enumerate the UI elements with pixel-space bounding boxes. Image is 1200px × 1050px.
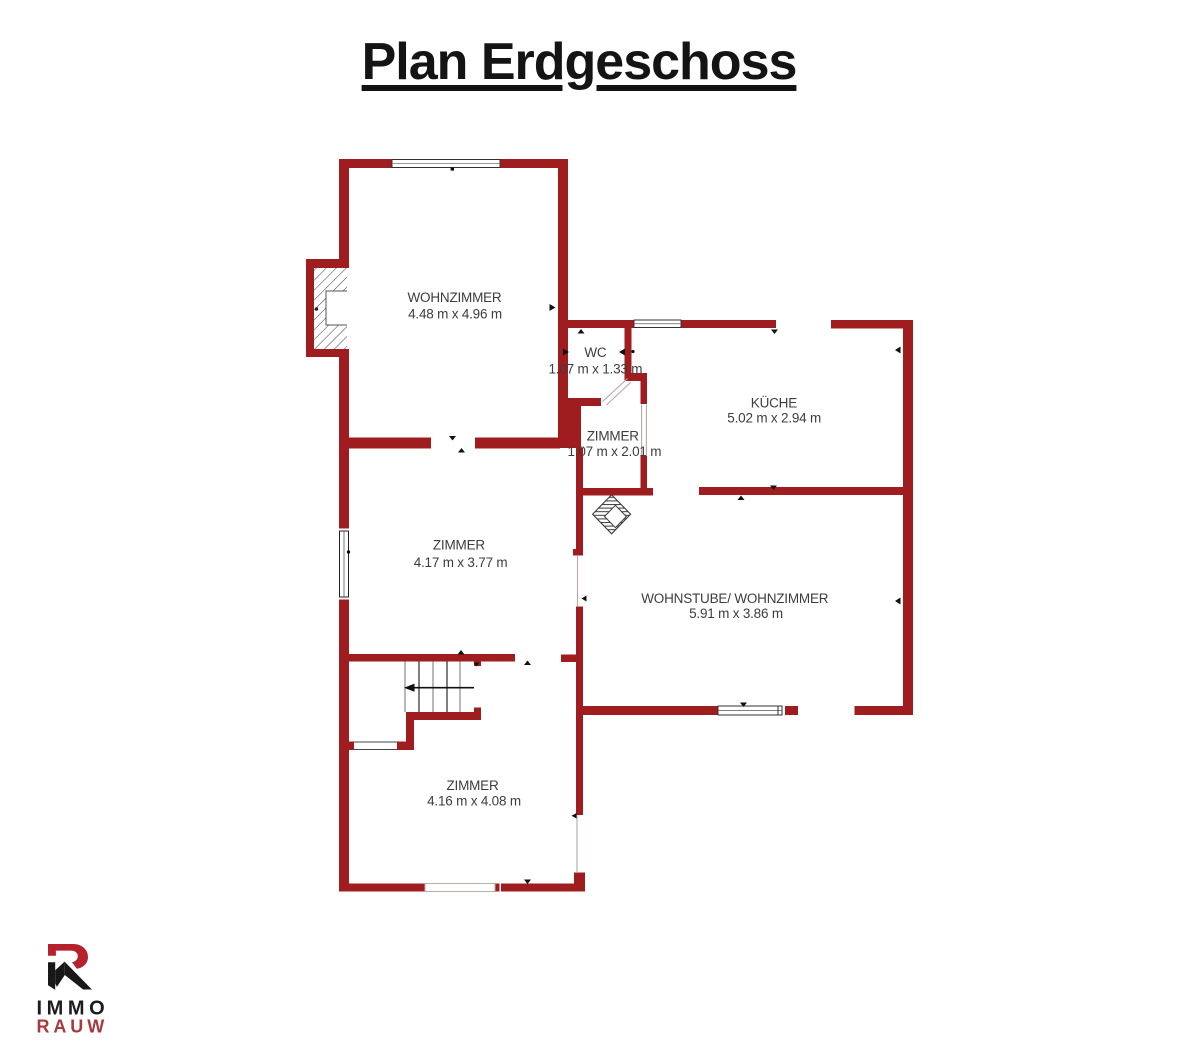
svg-text:WC: WC — [584, 345, 607, 360]
svg-text:4.48 m x 4.96 m: 4.48 m x 4.96 m — [408, 307, 502, 322]
svg-text:4.17 m x 3.77 m: 4.17 m x 3.77 m — [414, 555, 508, 570]
svg-text:ZIMMER: ZIMMER — [587, 428, 639, 443]
svg-text:5.91 m x 3.86 m: 5.91 m x 3.86 m — [689, 606, 783, 621]
svg-text:1.07 m x 1.33 m: 1.07 m x 1.33 m — [549, 361, 643, 376]
svg-text:1.07 m x 2.01 m: 1.07 m x 2.01 m — [568, 444, 662, 459]
svg-text:KÜCHE: KÜCHE — [751, 395, 797, 410]
svg-text:ZIMMER: ZIMMER — [433, 538, 485, 553]
svg-text:RAUW: RAUW — [37, 1016, 109, 1036]
svg-text:ZIMMER: ZIMMER — [446, 778, 498, 793]
svg-text:WOHNSTUBE/ WOHNZIMMER: WOHNSTUBE/ WOHNZIMMER — [641, 591, 828, 606]
svg-text:5.02 m x 2.94 m: 5.02 m x 2.94 m — [727, 411, 821, 426]
svg-text:WOHNZIMMER: WOHNZIMMER — [408, 290, 502, 305]
svg-text:4.16 m x 4.08 m: 4.16 m x 4.08 m — [427, 794, 521, 809]
